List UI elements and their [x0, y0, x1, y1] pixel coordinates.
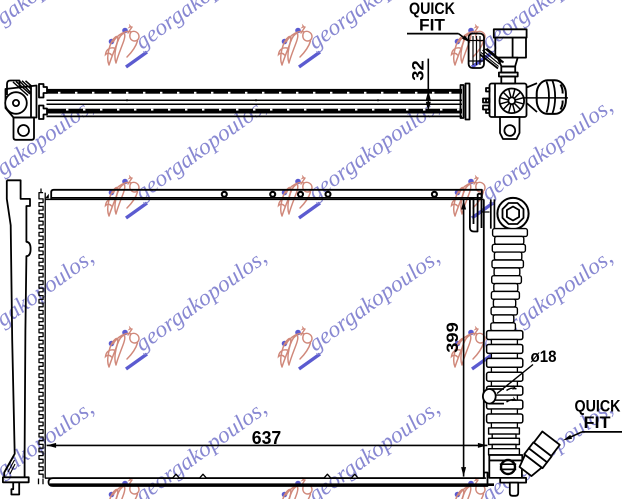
svg-text:399: 399 — [443, 322, 462, 353]
svg-text:FIT: FIT — [584, 414, 611, 432]
svg-text:32: 32 — [409, 60, 428, 81]
svg-text:georgakopoulos,: georgakopoulos, — [130, 244, 271, 356]
svg-text:georgakopoulos,: georgakopoulos, — [303, 244, 444, 356]
svg-text:637: 637 — [252, 428, 282, 448]
svg-text:georgakopoulos,: georgakopoulos, — [0, 244, 98, 356]
svg-text:QUICK: QUICK — [575, 398, 621, 416]
svg-text:georgakopoulos,: georgakopoulos, — [130, 0, 271, 54]
svg-text:QUICK: QUICK — [409, 0, 455, 18]
svg-text:georgakopoulos,: georgakopoulos, — [476, 0, 617, 54]
svg-text:ø18: ø18 — [531, 348, 557, 366]
svg-text:FIT: FIT — [419, 17, 445, 35]
svg-text:georgakopoulos,: georgakopoulos, — [0, 0, 98, 54]
